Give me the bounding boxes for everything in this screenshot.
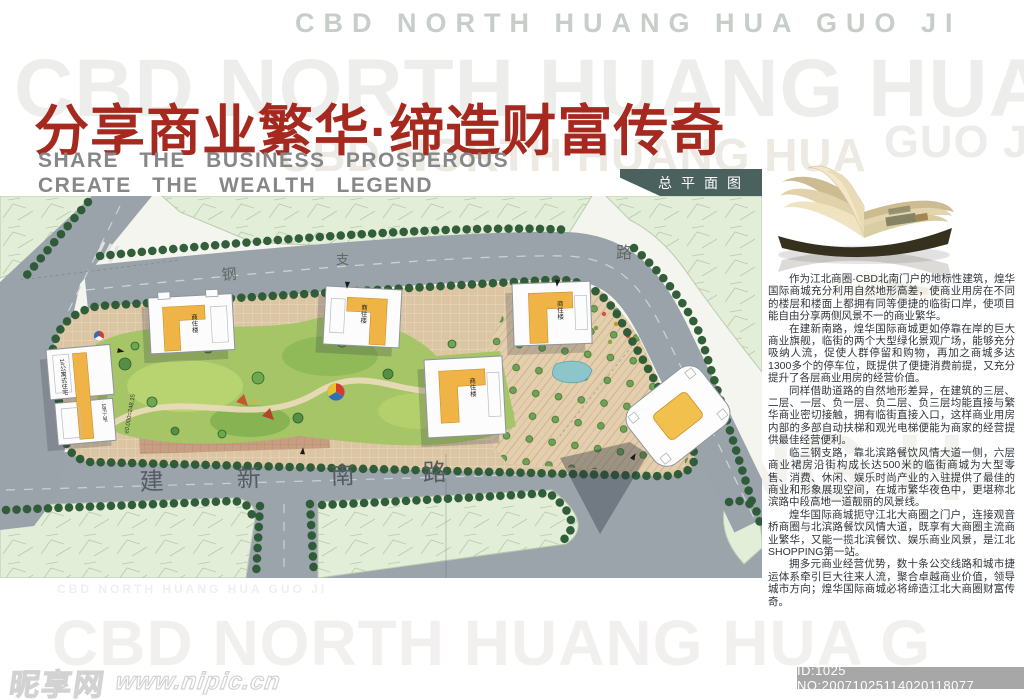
building-1-apartment: 1#公寓式住宅 18F/-3F bbox=[39, 344, 119, 451]
master-plan-badge: 总平面图 bbox=[620, 169, 762, 196]
site-plan-drawing: 1#公寓式住宅 18F/-3F ±0.000=248.15 商住楼 商住楼 商住… bbox=[0, 196, 762, 578]
nipic-watermark-logo: 昵享网 www.nipic.cn bbox=[7, 660, 284, 699]
article-paragraph: 拥多元商业经营优势，数十条公交线路和城市捷运体系牵引巨大往来人流，聚合卓越商业价… bbox=[768, 558, 1015, 608]
road-char-jian: 建 bbox=[139, 468, 164, 496]
article-paragraph: 同样借助道路的自然地形差异，在建筑的三层、二层、一层、负一层、负二层、负三层均能… bbox=[768, 385, 1015, 447]
road-char-lu2: 路 bbox=[616, 244, 632, 262]
building-5: 商住楼 bbox=[417, 356, 506, 447]
road-char-lu: 路 bbox=[422, 459, 447, 487]
subtitle-line-2: CREATE THE WEALTH LEGEND bbox=[38, 173, 509, 198]
road-char-gang: 钢 bbox=[221, 266, 237, 284]
image-id-strip: ID:1025 NO:20071025114020118077 bbox=[797, 667, 1024, 689]
water-feature bbox=[552, 361, 592, 383]
article-paragraph: 在建新南路，煌华国际商城更如停靠在岸的巨大商业旗舰，临街的两个大型绿化景观广场，… bbox=[768, 323, 1015, 385]
article-paragraph: 临三钢支路，靠北滨路餐饮风情大道一侧，六层商业裙房沿街构成长达500米的临街商城… bbox=[768, 447, 1015, 509]
nipic-site-name: 昵享网 bbox=[7, 660, 109, 699]
subtitle-line-1: SHARE THE BUSINESS PROSPEROUS bbox=[38, 148, 509, 173]
poster-page: CBD NORTH HUANG HUA GUO JI CBD NORTH HUA… bbox=[0, 0, 1024, 699]
road-char-zhi: 支 bbox=[336, 252, 349, 267]
building-2: 商住楼 bbox=[141, 289, 236, 364]
road-char-xin: 新 bbox=[236, 465, 261, 493]
image-id-label: ID:1025 NO:20071025114020118077 bbox=[797, 663, 1024, 693]
road-char-nan: 南 bbox=[330, 462, 355, 490]
watermark-bottom-line: CBD NORTH HUANG HUA GUO JI bbox=[57, 582, 327, 596]
article-paragraph: 煌华国际商城扼守江北大商圈之门户，连接观音桥商圈与北滨路餐饮风情大道，既享有大商… bbox=[768, 509, 1015, 559]
project-description: 作为江北商圈·CBD北南门户的地标性建筑，煌华国际商城充分利用自然地形高差，使商… bbox=[768, 273, 1015, 608]
master-plan-badge-label: 总平面图 bbox=[632, 173, 750, 193]
watermark-top-line: CBD NORTH HUANG HUA GUO JI bbox=[295, 8, 962, 39]
article-paragraph: 作为江北商圈·CBD北南门户的地标性建筑，煌华国际商城充分利用自然地形高差，使商… bbox=[768, 273, 1015, 323]
building-4: 商住楼 bbox=[505, 281, 592, 355]
building-3: 商住楼 bbox=[316, 286, 402, 357]
nipic-site-url: www.nipic.cn bbox=[114, 668, 282, 696]
page-subtitle: SHARE THE BUSINESS PROSPEROUS CREATE THE… bbox=[38, 148, 509, 198]
